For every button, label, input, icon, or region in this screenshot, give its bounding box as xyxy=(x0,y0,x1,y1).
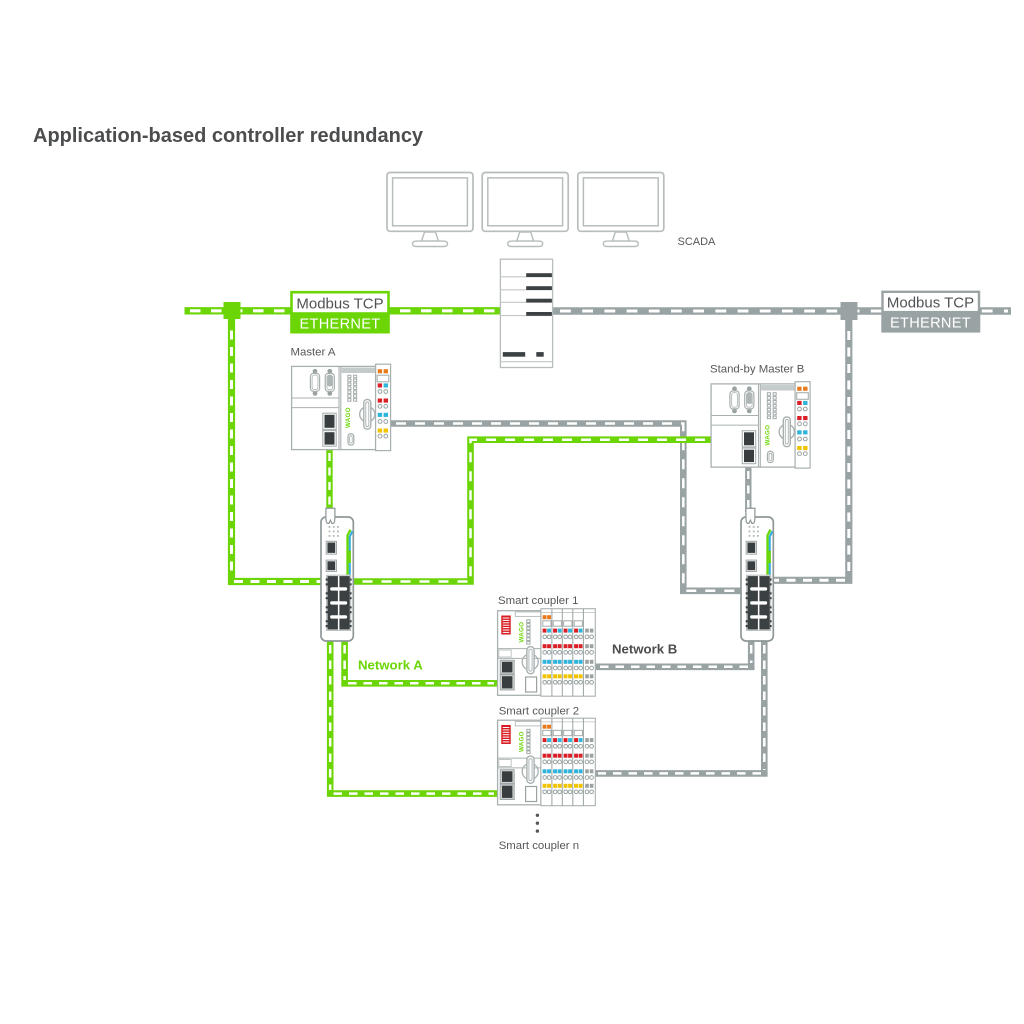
svg-text:Stand-by Master B: Stand-by Master B xyxy=(710,364,804,376)
svg-text:ETHERNET: ETHERNET xyxy=(299,317,380,333)
svg-text:ETHERNET: ETHERNET xyxy=(890,316,971,332)
svg-text:Smart coupler 1: Smart coupler 1 xyxy=(498,595,578,607)
svg-text:SCADA: SCADA xyxy=(678,236,717,248)
svg-text:Network B: Network B xyxy=(612,642,677,657)
svg-text:Smart coupler 2: Smart coupler 2 xyxy=(499,706,579,718)
svg-text:Network A: Network A xyxy=(358,657,423,672)
svg-text:Master A: Master A xyxy=(291,347,336,359)
svg-text:Application-based controller r: Application-based controller redundancy xyxy=(33,125,424,147)
svg-text:Smart coupler n: Smart coupler n xyxy=(499,840,579,852)
svg-text:Modbus TCP: Modbus TCP xyxy=(296,295,383,312)
svg-text:Modbus TCP: Modbus TCP xyxy=(887,295,974,312)
